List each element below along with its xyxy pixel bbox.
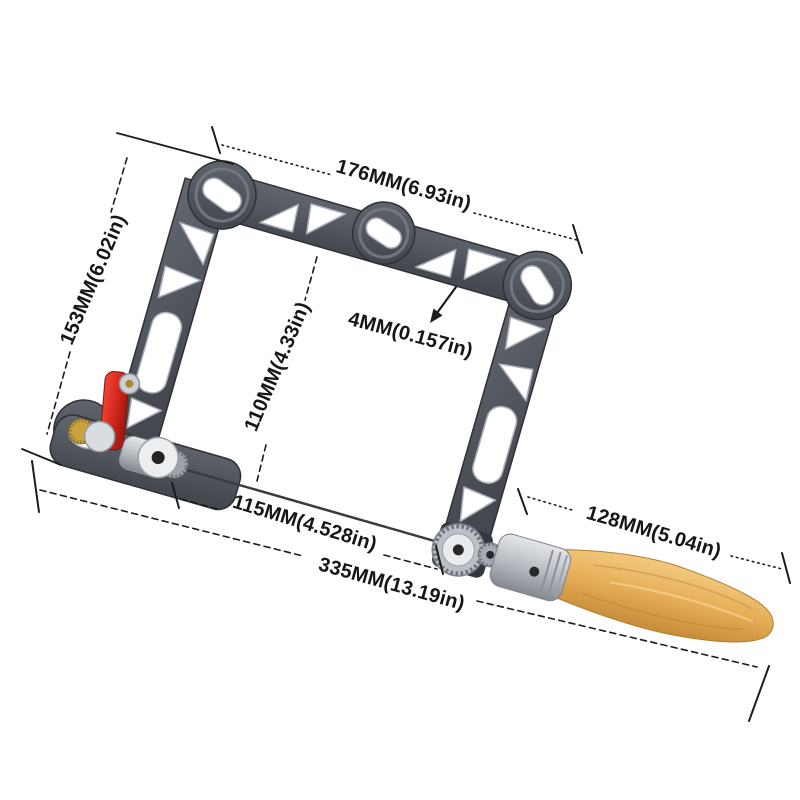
label-frame-thickness: 4MM(0.157in) — [346, 308, 475, 362]
label-top-width: 176MM(6.93in) — [334, 155, 474, 215]
tick — [32, 461, 39, 512]
tick — [212, 127, 220, 153]
handle-collar — [487, 531, 573, 603]
wooden-handle — [553, 540, 782, 657]
product-photo-stage: 176MM(6.93in) 153MM(6.02in) 110MM(4.33in… — [0, 0, 800, 800]
label-left-height: 153MM(6.02in) — [56, 211, 131, 348]
label-throat-depth: 110MM(4.33in) — [240, 299, 314, 435]
tick — [573, 225, 582, 253]
tick — [782, 553, 790, 583]
tick — [749, 666, 769, 721]
dimension-thickness-arrow — [430, 287, 456, 323]
arrowhead — [430, 309, 443, 324]
label-blade-length: 115MM(4.528in) — [230, 491, 379, 556]
tick — [518, 489, 527, 514]
coping-saw-product-image: 176MM(6.93in) 153MM(6.02in) 110MM(4.33in… — [0, 0, 800, 800]
